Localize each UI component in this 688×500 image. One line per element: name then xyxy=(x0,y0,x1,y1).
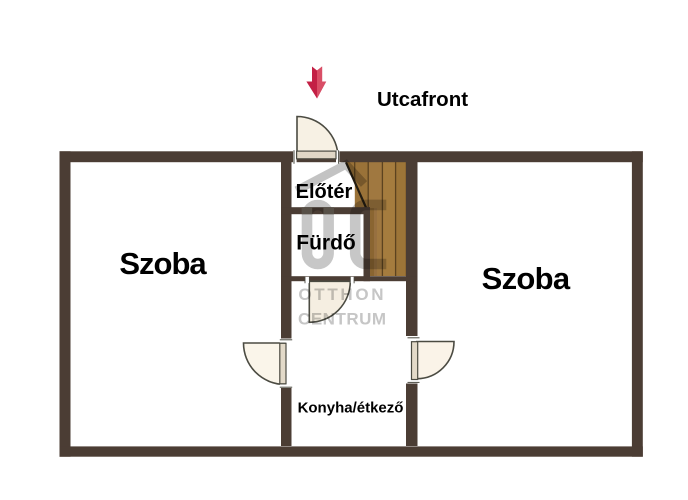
svg-text:Szoba: Szoba xyxy=(482,261,571,296)
svg-text:Szoba: Szoba xyxy=(119,246,207,281)
svg-text:Konyha/étkező: Konyha/étkező xyxy=(298,400,404,417)
svg-text:Utcafront: Utcafront xyxy=(377,88,468,111)
svg-text:OTTHON: OTTHON xyxy=(298,285,386,304)
svg-text:CENTRUM: CENTRUM xyxy=(298,310,387,329)
